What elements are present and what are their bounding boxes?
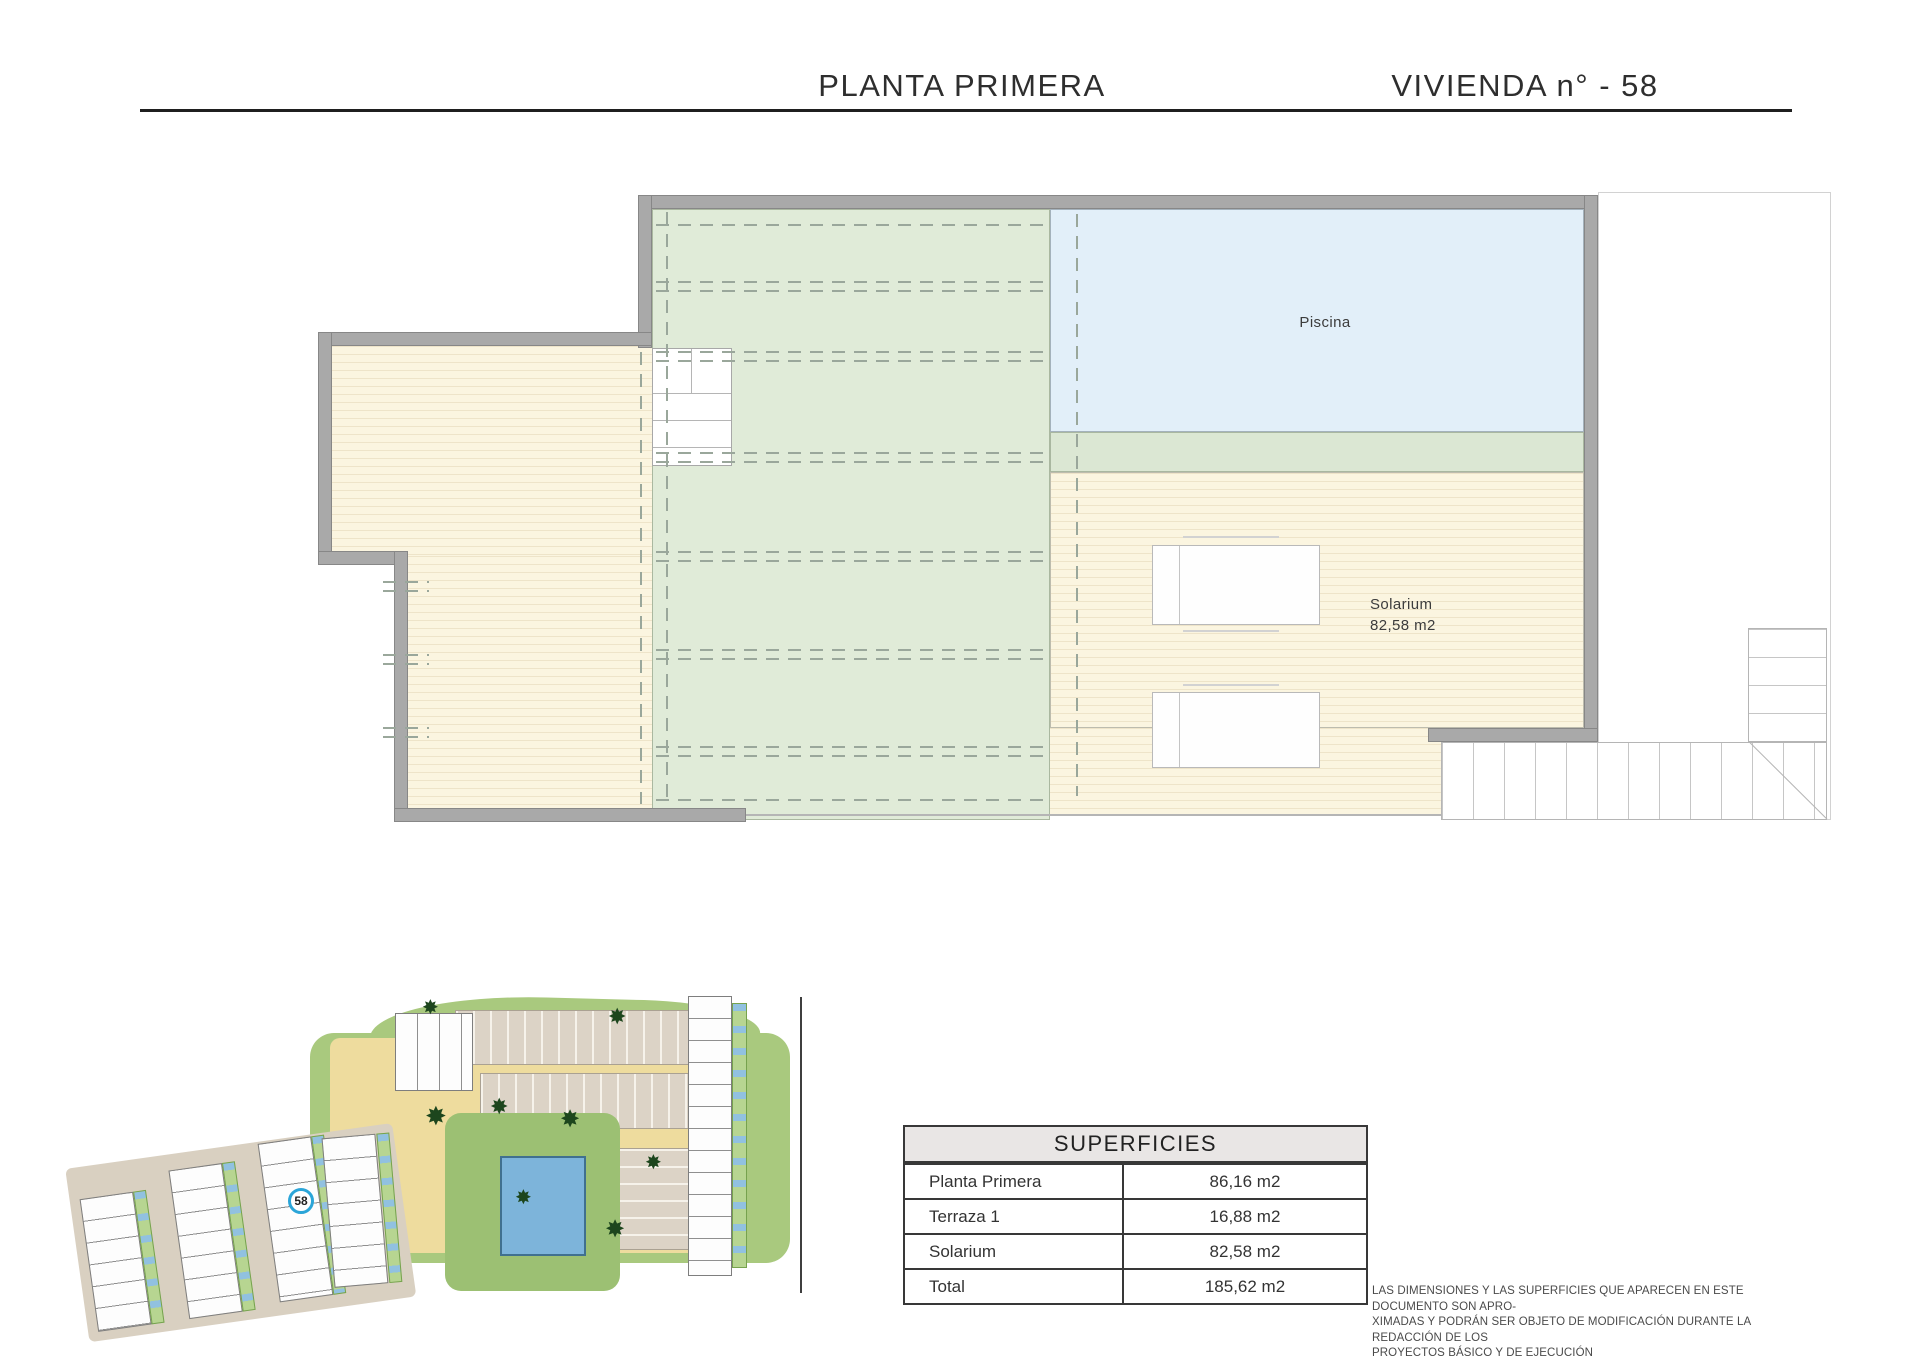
dashed-projection-line — [656, 290, 1046, 292]
table-row: Planta Primera 86,16 m2 — [905, 1163, 1366, 1198]
plan-bottom-line — [746, 814, 1441, 816]
dashed-projection-line — [656, 658, 1046, 660]
terrace-lower — [408, 556, 652, 808]
sun-lounger — [1152, 692, 1320, 768]
solarium-label: Solarium — [1370, 596, 1432, 613]
palm-tree-icon: ✸ — [560, 1108, 580, 1132]
disclaimer-line: PROYECTOS BÁSICO Y DE EJECUCIÓN — [1372, 1346, 1820, 1358]
dashed-projection-line — [666, 212, 668, 802]
site-garden-strip — [732, 1003, 747, 1268]
row-value: 82,58 m2 — [1122, 1235, 1366, 1268]
site-units-block — [395, 1013, 473, 1091]
interior-stair — [652, 348, 732, 466]
sun-lounger — [1152, 545, 1320, 625]
lounger-pillow-line — [1179, 693, 1180, 767]
site-mid-column — [321, 1127, 407, 1295]
unit-title: VIVIENDA n° - 58 — [1375, 68, 1675, 104]
dashed-projection-line — [656, 551, 1046, 553]
wall-solarium-bottom — [1428, 728, 1598, 742]
pool-deck-strip — [1050, 432, 1584, 472]
dashed-projection-line — [640, 352, 642, 804]
dashed-projection-stub — [383, 654, 429, 656]
wall-bottom — [394, 808, 746, 822]
palm-tree-icon: ✸ — [422, 998, 439, 1018]
row-label: Planta Primera — [905, 1165, 1122, 1198]
dashed-projection-line — [656, 746, 1046, 748]
site-parking — [455, 1010, 700, 1065]
section-divider-line — [800, 997, 802, 1293]
site-units-block — [688, 996, 732, 1276]
dashed-projection-line — [656, 281, 1046, 283]
dashed-projection-line — [656, 799, 1046, 801]
disclaimer-text: LAS DIMENSIONES Y LAS SUPERFICIES QUE AP… — [1372, 1284, 1820, 1358]
solarium-area-value: 82,58 m2 — [1370, 617, 1436, 634]
dashed-projection-stub — [383, 663, 429, 665]
towel-line — [1183, 630, 1279, 632]
dashed-projection-line — [656, 755, 1046, 757]
palm-tree-icon: ✸ — [490, 1096, 508, 1118]
towel-line — [1183, 536, 1279, 538]
dashed-projection-line — [656, 224, 1046, 226]
wall-terrace-left — [318, 332, 332, 565]
dashed-projection-line — [656, 360, 1046, 362]
disclaimer-line: XIMADAS Y PODRÁN SER OBJETO DE MODIFICAC… — [1372, 1315, 1820, 1346]
disclaimer-line: LAS DIMENSIONES Y LAS SUPERFICIES QUE AP… — [1372, 1284, 1820, 1315]
stair-tread-line — [653, 447, 731, 448]
row-label: Solarium — [905, 1235, 1122, 1268]
palm-tree-icon: ✸ — [608, 1006, 626, 1028]
table-row: Total 185,62 m2 — [905, 1268, 1366, 1303]
palm-tree-icon: ✸ — [605, 1218, 625, 1242]
wall-top — [638, 195, 1598, 209]
outdoor-stair-run — [1441, 742, 1827, 820]
floor-title: PLANTA PRIMERA — [762, 68, 1162, 104]
palm-tree-icon: ✸ — [515, 1188, 532, 1208]
row-value: 185,62 m2 — [1122, 1270, 1366, 1303]
surfaces-table: SUPERFICIES Planta Primera 86,16 m2 Terr… — [903, 1125, 1368, 1305]
pool-label: Piscina — [1270, 314, 1380, 331]
stair-tread-line — [653, 393, 731, 394]
dashed-projection-stub — [383, 581, 429, 583]
row-label: Terraza 1 — [905, 1200, 1122, 1233]
outdoor-stair-column — [1748, 628, 1827, 742]
row-label: Total — [905, 1270, 1122, 1303]
dashed-projection-line — [656, 351, 1046, 353]
dashed-projection-stub — [383, 590, 429, 592]
header-rule — [140, 109, 1792, 112]
stair-divider-line — [691, 349, 692, 393]
dashed-projection-line — [656, 452, 1046, 454]
roof-area — [652, 209, 1050, 820]
stair-tread-line — [653, 420, 731, 421]
surfaces-table-title: SUPERFICIES — [905, 1127, 1366, 1163]
dashed-projection-stub — [383, 736, 429, 738]
site-pool — [500, 1156, 586, 1256]
dashed-projection-line — [656, 649, 1046, 651]
wall-terrace-top — [318, 332, 652, 346]
palm-tree-icon: ✸ — [425, 1103, 447, 1129]
wall-roof-left — [638, 195, 652, 348]
dashed-projection-stub — [383, 727, 429, 729]
table-row: Terraza 1 16,88 m2 — [905, 1198, 1366, 1233]
table-row: Solarium 82,58 m2 — [905, 1233, 1366, 1268]
towel-line — [1183, 684, 1279, 686]
unit-marker-58: 58 — [288, 1188, 314, 1214]
site-plan: ✸ ✸ ✸ ✸ ✸ ✸ ✸ ✸ 58 — [60, 958, 805, 1298]
row-value: 16,88 m2 — [1122, 1200, 1366, 1233]
plan-sheet: PLANTA PRIMERA VIVIENDA n° - 58 — [0, 0, 1920, 1358]
dashed-projection-line — [656, 560, 1046, 562]
terrace-upper — [332, 346, 652, 556]
dashed-projection-line — [656, 461, 1046, 463]
row-value: 86,16 m2 — [1122, 1165, 1366, 1198]
lounger-pillow-line — [1179, 546, 1180, 624]
palm-tree-icon: ✸ — [645, 1153, 662, 1173]
wall-right — [1584, 195, 1598, 742]
dashed-projection-line — [1076, 214, 1078, 796]
